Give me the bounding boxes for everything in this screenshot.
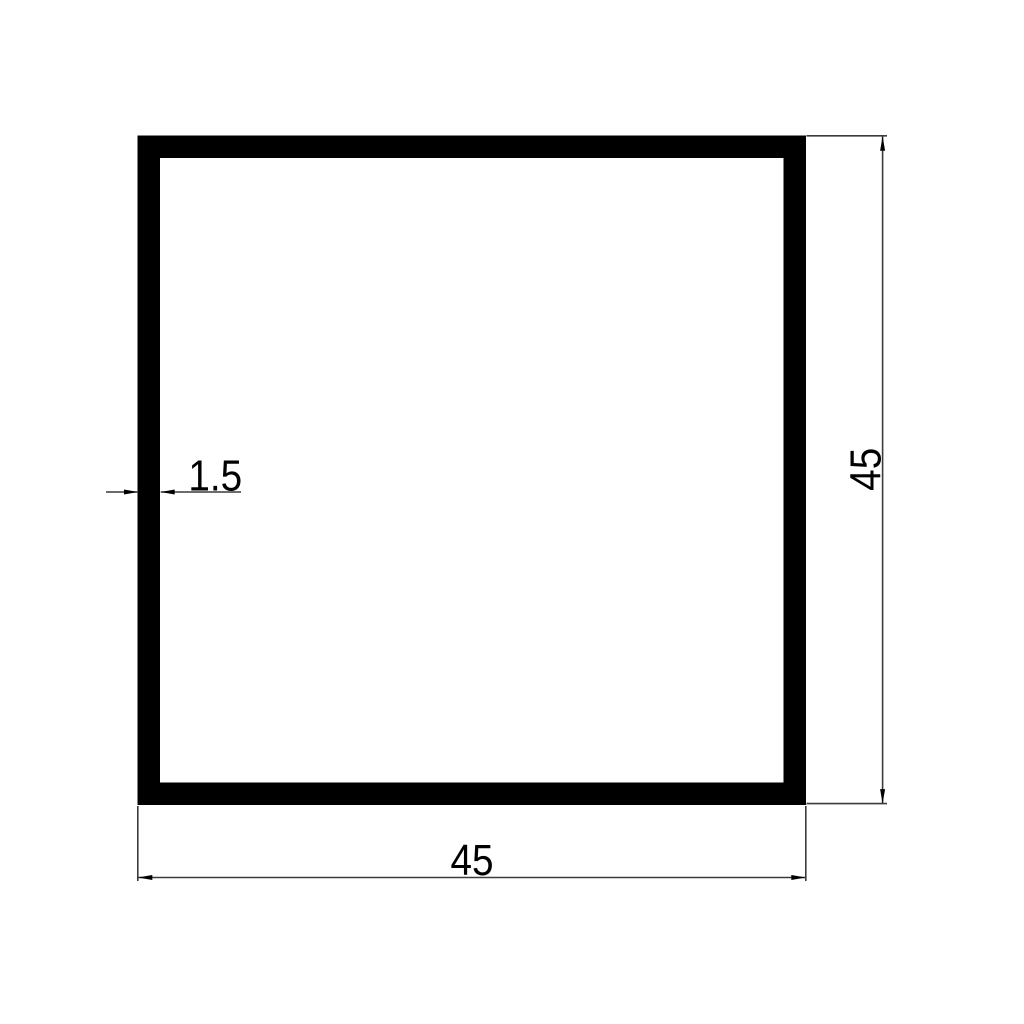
svg-text:45: 45 xyxy=(840,448,890,491)
svg-text:1.5: 1.5 xyxy=(188,450,242,500)
svg-text:45: 45 xyxy=(450,835,493,885)
